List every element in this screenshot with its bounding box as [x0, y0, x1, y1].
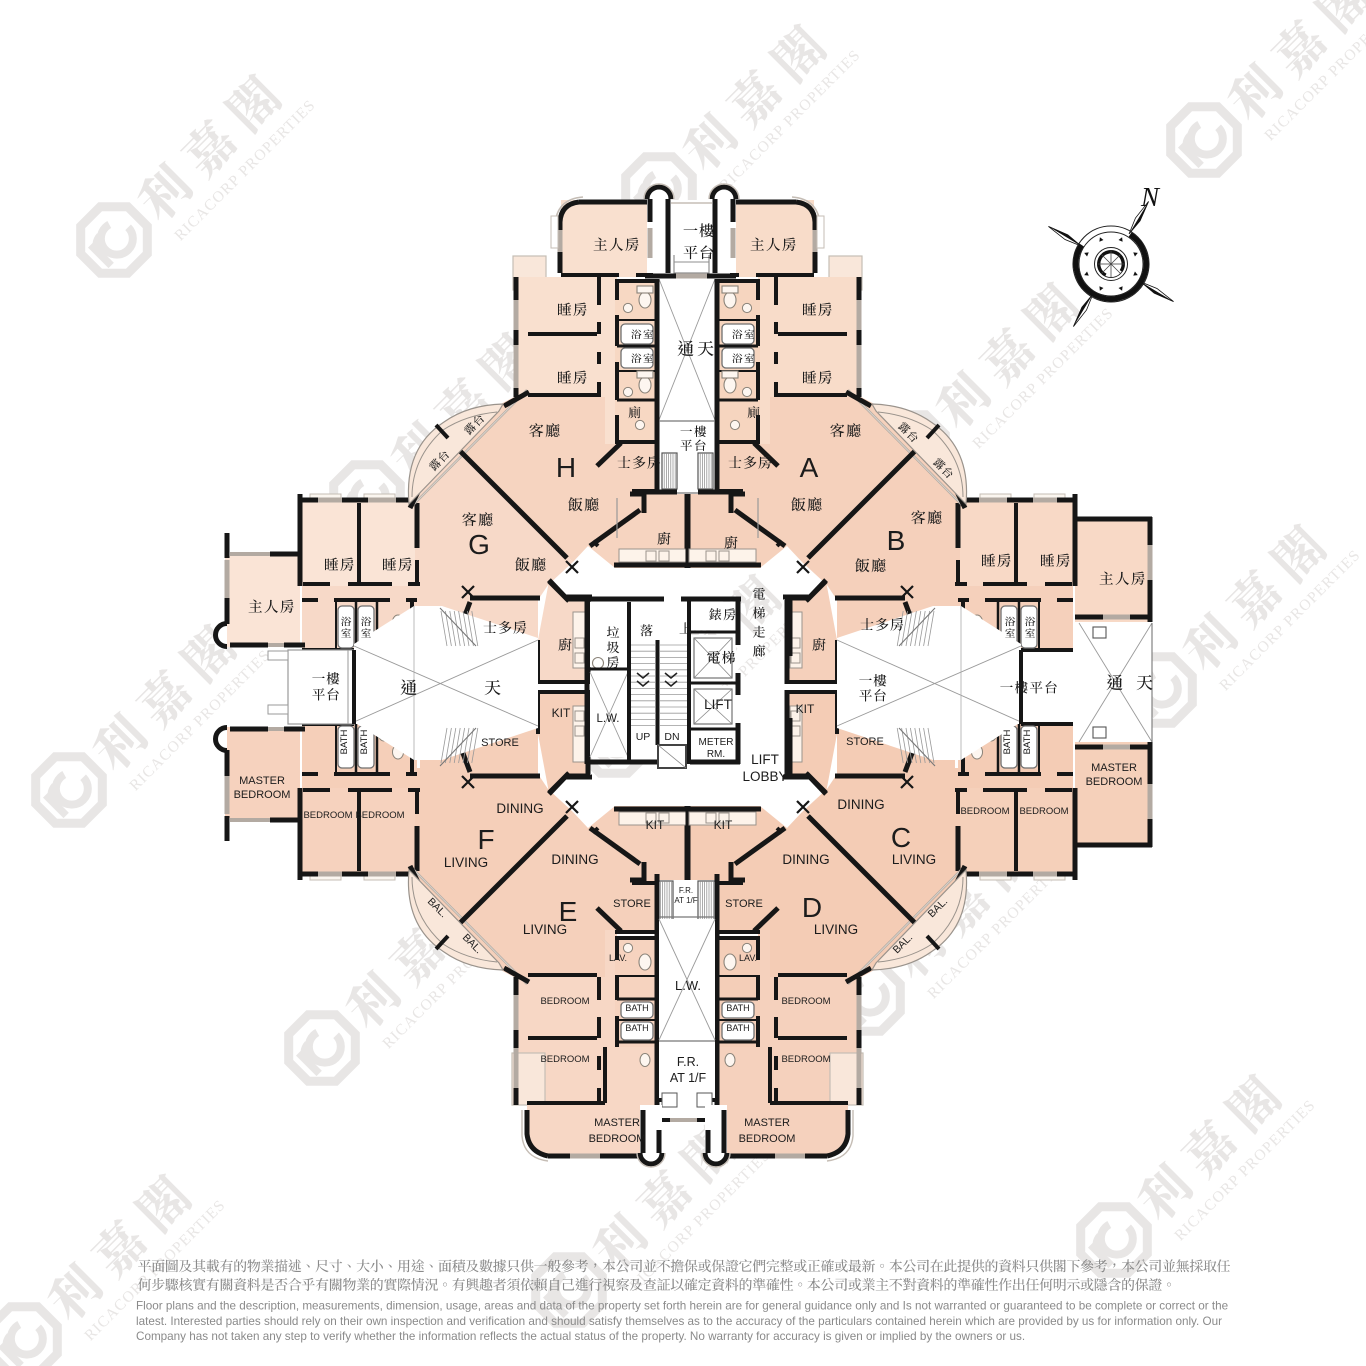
svg-text:STORE: STORE [481, 737, 519, 749]
svg-text:B: B [887, 525, 906, 556]
svg-text:BEDROOM: BEDROOM [355, 810, 404, 821]
svg-text:C: C [891, 822, 911, 853]
svg-text:BEDROOM: BEDROOM [589, 1133, 646, 1145]
svg-text:LIFT: LIFT [751, 752, 779, 767]
svg-text:BEDROOM: BEDROOM [540, 996, 589, 1007]
svg-text:DINING: DINING [551, 852, 598, 867]
svg-text:MASTER: MASTER [239, 775, 285, 787]
svg-text:BATH: BATH [625, 1023, 648, 1033]
svg-text:F: F [477, 824, 494, 855]
svg-text:STORE: STORE [725, 898, 763, 910]
svg-text:DINING: DINING [837, 797, 884, 812]
svg-text:RM.: RM. [707, 749, 725, 760]
svg-text:AT 1/F: AT 1/F [670, 1071, 707, 1085]
svg-text:BATH: BATH [625, 1003, 648, 1013]
svg-text:BEDROOM: BEDROOM [781, 996, 830, 1007]
svg-text:BATH: BATH [1022, 730, 1033, 755]
svg-text:STORE: STORE [846, 736, 884, 748]
svg-text:LIFT: LIFT [704, 697, 732, 712]
svg-text:KIT: KIT [552, 706, 571, 720]
svg-text:MASTER: MASTER [744, 1117, 790, 1129]
svg-text:BATH: BATH [1002, 730, 1013, 755]
svg-text:BEDROOM: BEDROOM [739, 1133, 796, 1145]
svg-text:BEDROOM: BEDROOM [960, 806, 1009, 817]
svg-text:MASTER: MASTER [594, 1117, 640, 1129]
svg-text:DINING: DINING [496, 801, 543, 816]
svg-text:F.R.: F.R. [677, 1055, 699, 1069]
svg-text:DN: DN [664, 731, 679, 743]
svg-text:LAV.: LAV. [609, 953, 627, 963]
svg-text:LIVING: LIVING [814, 922, 858, 937]
svg-text:F.R.: F.R. [679, 886, 693, 895]
svg-text:BEDROOM: BEDROOM [781, 1054, 830, 1065]
svg-text:L.W.: L.W. [675, 978, 701, 993]
svg-text:latest. Interested parties sho: latest. Interested parties should rely o… [136, 1315, 1222, 1328]
svg-text:KIT: KIT [646, 818, 665, 832]
svg-text:LAV.: LAV. [739, 953, 757, 963]
svg-text:LOBBY: LOBBY [742, 769, 787, 784]
svg-text:A: A [800, 452, 819, 483]
svg-text:D: D [802, 892, 822, 923]
svg-text:BEDROOM: BEDROOM [540, 1054, 589, 1065]
svg-text:BEDROOM: BEDROOM [303, 810, 352, 821]
svg-text:LIVING: LIVING [523, 922, 567, 937]
svg-text:BATH: BATH [726, 1003, 749, 1013]
svg-text:BEDROOM: BEDROOM [1019, 806, 1068, 817]
svg-text:MASTER: MASTER [1091, 762, 1137, 774]
svg-text:Company has not taken any step: Company has not taken any step to verify… [136, 1330, 1025, 1343]
svg-text:L.W.: L.W. [596, 713, 619, 725]
svg-text:BATH: BATH [359, 730, 370, 755]
svg-text:LIVING: LIVING [444, 855, 488, 870]
svg-text:H: H [556, 452, 576, 483]
svg-text:KIT: KIT [796, 702, 815, 716]
svg-text:BEDROOM: BEDROOM [234, 789, 291, 801]
svg-text:BATH: BATH [726, 1023, 749, 1033]
svg-text:G: G [468, 529, 490, 560]
svg-text:STORE: STORE [613, 898, 651, 910]
svg-text:UP: UP [636, 731, 651, 743]
svg-text:AT 1/F: AT 1/F [674, 896, 697, 905]
svg-text:METER: METER [699, 737, 734, 748]
svg-text:Floor plans and the descriptio: Floor plans and the description, measure… [136, 1300, 1228, 1313]
svg-text:BATH: BATH [339, 730, 350, 755]
svg-text:N: N [1140, 182, 1161, 212]
svg-text:BEDROOM: BEDROOM [1086, 776, 1143, 788]
svg-text:DINING: DINING [782, 852, 829, 867]
svg-text:LIVING: LIVING [892, 852, 936, 867]
svg-text:KIT: KIT [714, 818, 733, 832]
